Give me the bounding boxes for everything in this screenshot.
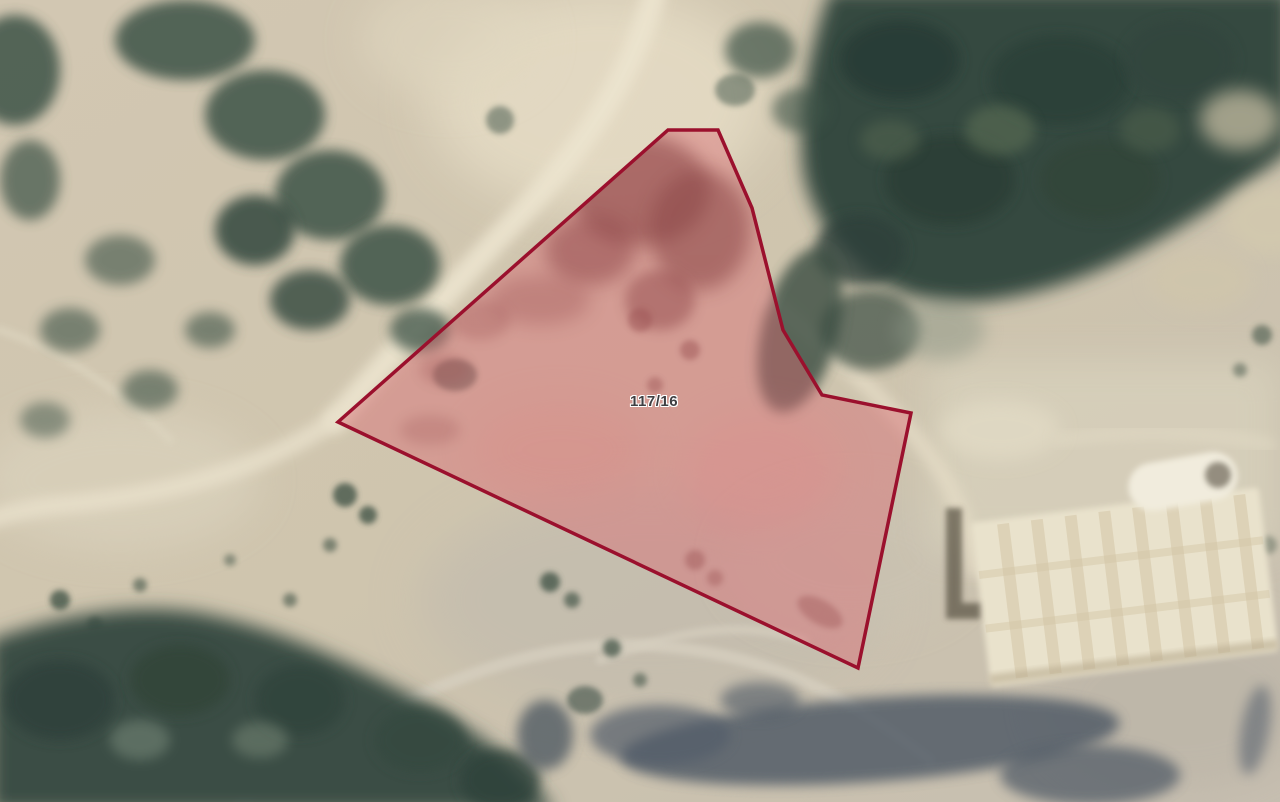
parcel-label: 117/16: [630, 393, 678, 410]
greenhouse-structure: [971, 487, 1279, 686]
satellite-map-view[interactable]: 117/16: [0, 0, 1280, 802]
